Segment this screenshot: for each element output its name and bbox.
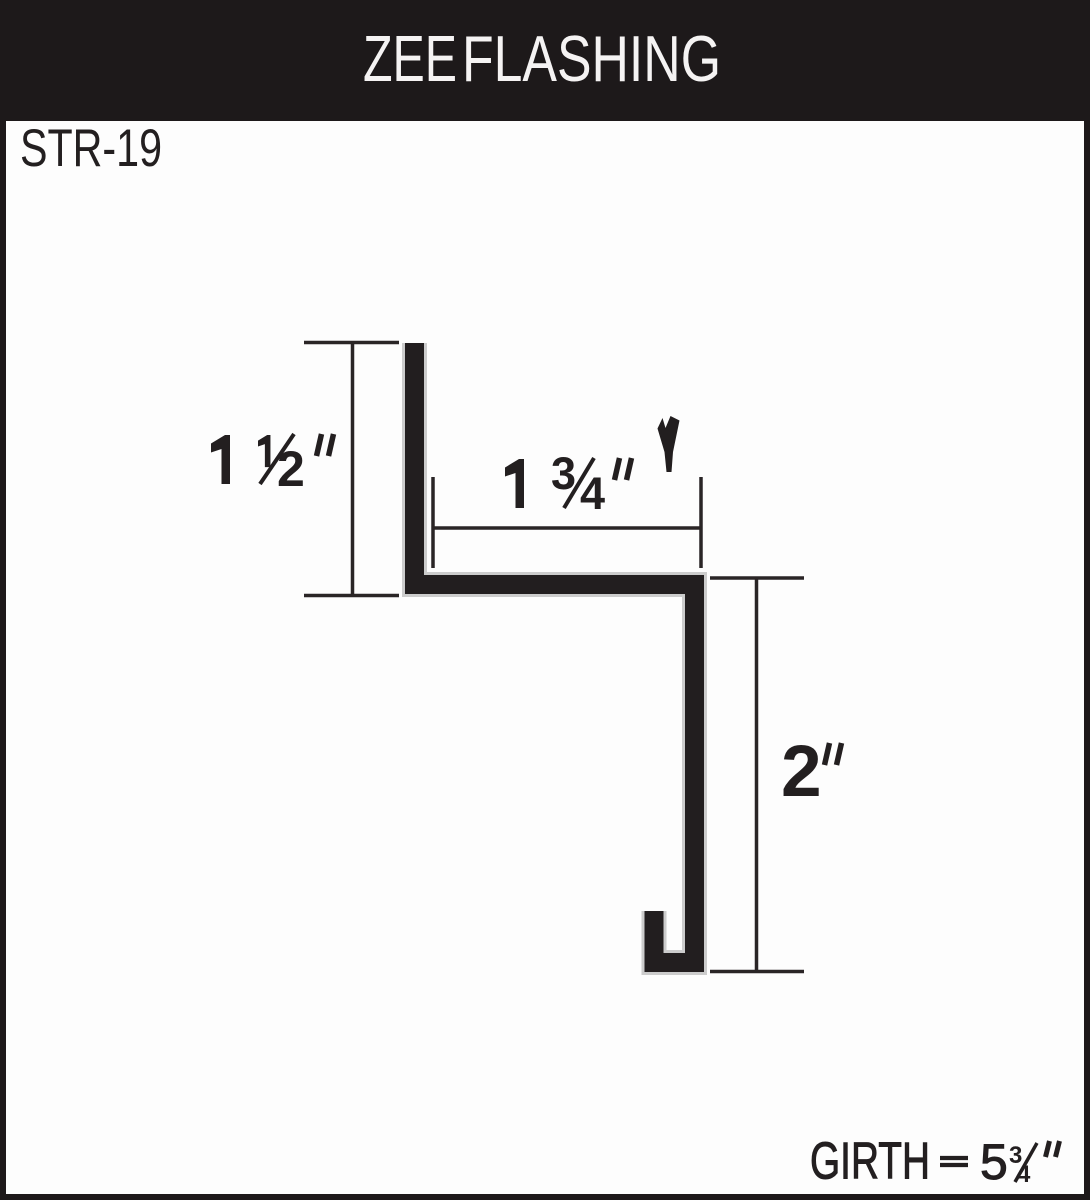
svg-text:ZEE: ZEE xyxy=(363,22,457,95)
svg-text:4: 4 xyxy=(580,468,605,519)
svg-text:5: 5 xyxy=(980,1134,1008,1190)
svg-text:2: 2 xyxy=(781,731,822,812)
svg-text:GIRTH: GIRTH xyxy=(810,1133,930,1191)
svg-text:STR-19: STR-19 xyxy=(20,119,162,178)
svg-text:FLASHING: FLASHING xyxy=(462,22,721,95)
svg-text:2: 2 xyxy=(277,441,305,497)
svg-text:4: 4 xyxy=(1017,1161,1031,1188)
